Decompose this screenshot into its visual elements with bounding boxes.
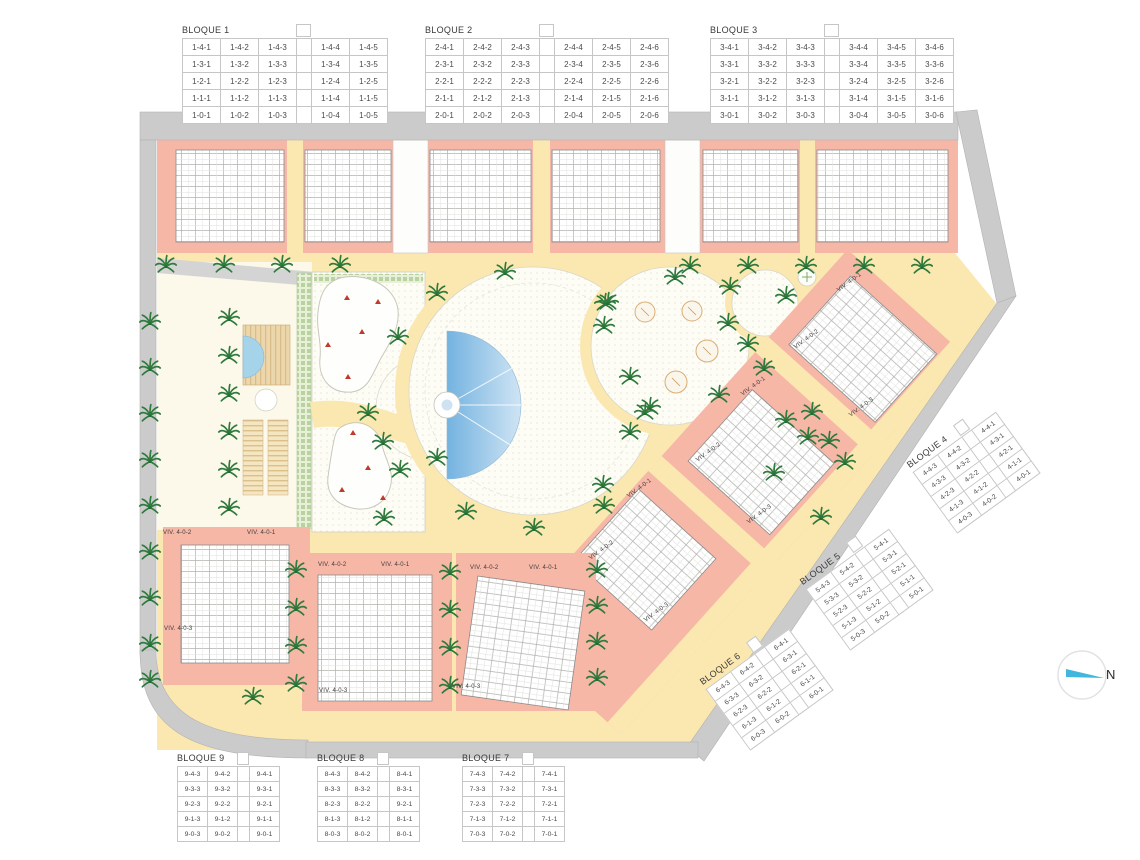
- unit-cell: 9-4-2: [208, 767, 238, 782]
- unit-cell: 2-0-1: [426, 107, 464, 124]
- unit-cell: 3-4-1: [711, 39, 749, 56]
- gap-cell: [297, 107, 312, 124]
- north-compass: [1058, 651, 1106, 699]
- unit-cell: 9-3-1: [250, 782, 280, 797]
- unit-cell: 3-3-6: [916, 56, 954, 73]
- unit-cell: 2-3-4: [555, 56, 593, 73]
- block-table-title: BLOQUE 7: [462, 752, 565, 766]
- block-table-title: BLOQUE 9: [177, 752, 280, 766]
- unit-cell: 8-1-3: [318, 812, 348, 827]
- gap-cell: [540, 73, 555, 90]
- unit-cell: 1-3-2: [221, 56, 259, 73]
- block-table-bloque-8: BLOQUE 88-4-38-4-28-4-18-3-38-3-28-3-18-…: [317, 752, 420, 842]
- unit-cell: 3-4-4: [840, 39, 878, 56]
- unit-cell: 3-4-6: [916, 39, 954, 56]
- unit-cell: 3-1-4: [840, 90, 878, 107]
- unit-cell: 3-4-5: [878, 39, 916, 56]
- unit-cell: 9-2-2: [208, 797, 238, 812]
- compass-north-label: N: [1106, 667, 1115, 682]
- unit-cell: 3-4-3: [787, 39, 825, 56]
- unit-cell: 9-2-1: [250, 797, 280, 812]
- unit-cell: 1-4-3: [259, 39, 297, 56]
- unit-label: VIV. 4-0-3: [319, 688, 347, 694]
- unit-cell: 3-1-1: [711, 90, 749, 107]
- unit-label: VIV. 4-0-1: [247, 530, 275, 536]
- unit-cell: 1-4-2: [221, 39, 259, 56]
- unit-cell: 9-0-2: [208, 827, 238, 842]
- unit-cell: 1-2-3: [259, 73, 297, 90]
- unit-cell: 2-3-3: [502, 56, 540, 73]
- pergola: [243, 420, 263, 495]
- table-corner-box: [824, 24, 839, 37]
- unit-cell: 3-2-1: [711, 73, 749, 90]
- unit-cell: 2-2-3: [502, 73, 540, 90]
- unit-cell: 7-0-1: [535, 827, 565, 842]
- unit-cell: 7-4-3: [463, 767, 493, 782]
- hedge-strip: [297, 273, 311, 529]
- unit-cell: 9-0-1: [250, 827, 280, 842]
- unit-cell: 9-4-1: [250, 767, 280, 782]
- unit-cell: 3-2-6: [916, 73, 954, 90]
- unit-cell: 1-0-4: [312, 107, 350, 124]
- block-table-title: BLOQUE 8: [317, 752, 420, 766]
- unit-cell: 2-1-3: [502, 90, 540, 107]
- unit-cell: 8-4-3: [318, 767, 348, 782]
- unit-cell: 2-1-4: [555, 90, 593, 107]
- unit-cell: 7-0-3: [463, 827, 493, 842]
- gap-cell: [238, 812, 250, 827]
- gap-cell: [540, 56, 555, 73]
- unit-cell: 8-4-2: [348, 767, 378, 782]
- unit-cell: 2-1-2: [464, 90, 502, 107]
- unit-cell: 3-0-6: [916, 107, 954, 124]
- unit-cell: 7-0-2: [493, 827, 523, 842]
- gap-cell: [238, 797, 250, 812]
- gap-cell: [523, 797, 535, 812]
- unit-label: VIV. 4-0-2: [470, 565, 498, 571]
- unit-cell: 2-4-3: [502, 39, 540, 56]
- block-table-title: BLOQUE 1: [182, 24, 388, 38]
- unit-cell: 9-2-1: [390, 797, 420, 812]
- unit-label: VIV. 4-0-3: [452, 684, 480, 690]
- gap-cell: [523, 812, 535, 827]
- unit-cell: 2-1-5: [593, 90, 631, 107]
- unit-cell: 3-3-5: [878, 56, 916, 73]
- unit-cell: 2-3-2: [464, 56, 502, 73]
- unit-cell: 3-3-1: [711, 56, 749, 73]
- unit-cell: 7-3-3: [463, 782, 493, 797]
- unit-cell: 3-0-5: [878, 107, 916, 124]
- gap-cell: [523, 767, 535, 782]
- unit-cell: 7-1-1: [535, 812, 565, 827]
- unit-cell: 8-2-2: [348, 797, 378, 812]
- gap-cell: [297, 90, 312, 107]
- unit-cell: 8-1-2: [348, 812, 378, 827]
- unit-cell: 7-2-1: [535, 797, 565, 812]
- unit-cell: 8-0-3: [318, 827, 348, 842]
- unit-cell: 3-2-3: [787, 73, 825, 90]
- gap-cell: [825, 73, 840, 90]
- apartment-building-floorplan: [318, 575, 432, 701]
- unit-cell: 2-1-6: [631, 90, 669, 107]
- gap-cell: [378, 767, 390, 782]
- unit-cell: 7-1-2: [493, 812, 523, 827]
- unit-cell: 1-2-1: [183, 73, 221, 90]
- table-corner-box: [296, 24, 311, 37]
- unit-cell: 2-0-6: [631, 107, 669, 124]
- unit-cell: 3-3-2: [749, 56, 787, 73]
- unit-cell: 3-3-4: [840, 56, 878, 73]
- unit-cell: 9-1-3: [178, 812, 208, 827]
- block-table-bloque-9: BLOQUE 99-4-39-4-29-4-19-3-39-3-29-3-19-…: [177, 752, 280, 842]
- unit-cell: 3-0-2: [749, 107, 787, 124]
- unit-cell: 3-2-4: [840, 73, 878, 90]
- gap-cell: [238, 782, 250, 797]
- unit-cell: 1-1-3: [259, 90, 297, 107]
- table-corner-box: [522, 752, 534, 765]
- unit-cell: 3-4-2: [749, 39, 787, 56]
- unit-cell: 1-4-1: [183, 39, 221, 56]
- unit-cell: 1-1-5: [350, 90, 388, 107]
- block-table-bloque-2: BLOQUE 22-4-12-4-22-4-32-4-42-4-52-4-62-…: [425, 24, 669, 124]
- unit-cell: 3-0-1: [711, 107, 749, 124]
- table-corner-box: [237, 752, 249, 765]
- unit-cell: 9-3-3: [178, 782, 208, 797]
- gap-cell: [378, 782, 390, 797]
- unit-cell: 3-2-2: [749, 73, 787, 90]
- unit-label: VIV. 4-0-3: [164, 626, 192, 632]
- unit-cell: 1-0-5: [350, 107, 388, 124]
- unit-cell: 8-0-2: [348, 827, 378, 842]
- unit-cell: 8-4-1: [390, 767, 420, 782]
- unit-cell: 1-4-4: [312, 39, 350, 56]
- unit-cell: 2-0-4: [555, 107, 593, 124]
- gap-cell: [378, 812, 390, 827]
- unit-cell: 9-0-3: [178, 827, 208, 842]
- unit-cell: 3-1-3: [787, 90, 825, 107]
- gap-cell: [825, 56, 840, 73]
- unit-cell: 7-2-3: [463, 797, 493, 812]
- gap-cell: [378, 797, 390, 812]
- unit-cell: 1-0-2: [221, 107, 259, 124]
- unit-cell: 1-4-5: [350, 39, 388, 56]
- unit-cell: 2-2-1: [426, 73, 464, 90]
- unit-cell: 1-3-5: [350, 56, 388, 73]
- unit-label: VIV. 4-0-2: [163, 530, 191, 536]
- gap-cell: [523, 827, 535, 842]
- left-plaza: [157, 262, 312, 530]
- unit-cell: 2-2-2: [464, 73, 502, 90]
- unit-cell: 2-1-1: [426, 90, 464, 107]
- gap-cell: [540, 107, 555, 124]
- unit-cell: 1-3-1: [183, 56, 221, 73]
- unit-cell: 7-1-3: [463, 812, 493, 827]
- unit-cell: 3-1-2: [749, 90, 787, 107]
- gap-cell: [378, 827, 390, 842]
- gap-cell: [238, 827, 250, 842]
- unit-cell: 9-1-2: [208, 812, 238, 827]
- unit-cell: 7-2-2: [493, 797, 523, 812]
- unit-cell: 1-1-2: [221, 90, 259, 107]
- block-table-bloque-3: BLOQUE 33-4-13-4-23-4-33-4-43-4-53-4-63-…: [710, 24, 954, 124]
- unit-cell: 9-2-3: [178, 797, 208, 812]
- plaza-circle-feature: [255, 389, 277, 411]
- unit-cell: 3-2-5: [878, 73, 916, 90]
- unit-cell: 2-3-6: [631, 56, 669, 73]
- unit-cell: 1-1-1: [183, 90, 221, 107]
- unit-cell: 8-2-3: [318, 797, 348, 812]
- unit-cell: 8-3-2: [348, 782, 378, 797]
- unit-cell: 1-2-4: [312, 73, 350, 90]
- gap-cell: [825, 39, 840, 56]
- unit-cell: 7-4-1: [535, 767, 565, 782]
- unit-cell: 2-2-4: [555, 73, 593, 90]
- unit-cell: 7-3-1: [535, 782, 565, 797]
- unit-label: VIV. 4-0-1: [529, 565, 557, 571]
- unit-cell: 1-3-3: [259, 56, 297, 73]
- unit-cell: 3-3-3: [787, 56, 825, 73]
- gap-cell: [540, 39, 555, 56]
- pergola: [268, 420, 288, 495]
- unit-cell: 9-4-3: [178, 767, 208, 782]
- unit-cell: 3-0-4: [840, 107, 878, 124]
- unit-cell: 2-4-6: [631, 39, 669, 56]
- unit-cell: 2-3-5: [593, 56, 631, 73]
- unit-cell: 9-3-2: [208, 782, 238, 797]
- unit-cell: 2-3-1: [426, 56, 464, 73]
- unit-cell: 2-4-1: [426, 39, 464, 56]
- unit-cell: 2-2-5: [593, 73, 631, 90]
- unit-cell: 3-0-3: [787, 107, 825, 124]
- gap-cell: [297, 56, 312, 73]
- unit-cell: 7-3-2: [493, 782, 523, 797]
- table-corner-box: [539, 24, 554, 37]
- unit-label: VIV. 4-0-2: [318, 562, 346, 568]
- gap-cell: [825, 90, 840, 107]
- block-table-bloque-1: BLOQUE 11-4-11-4-21-4-31-4-41-4-51-3-11-…: [182, 24, 388, 124]
- unit-cell: 8-0-1: [390, 827, 420, 842]
- gap-cell: [297, 39, 312, 56]
- unit-cell: 1-0-3: [259, 107, 297, 124]
- table-corner-box: [377, 752, 389, 765]
- unit-cell: 1-2-5: [350, 73, 388, 90]
- block-table-bloque-7: BLOQUE 77-4-37-4-27-4-17-3-37-3-27-3-17-…: [462, 752, 565, 842]
- unit-cell: 2-0-5: [593, 107, 631, 124]
- gap-cell: [825, 107, 840, 124]
- unit-cell: 3-1-5: [878, 90, 916, 107]
- gap-cell: [238, 767, 250, 782]
- gap-cell: [523, 782, 535, 797]
- unit-cell: 1-1-4: [312, 90, 350, 107]
- unit-cell: 2-2-6: [631, 73, 669, 90]
- unit-cell: 1-0-1: [183, 107, 221, 124]
- unit-cell: 7-4-2: [493, 767, 523, 782]
- unit-cell: 2-4-5: [593, 39, 631, 56]
- unit-cell: 2-4-2: [464, 39, 502, 56]
- gap-cell: [540, 90, 555, 107]
- unit-cell: 1-2-2: [221, 73, 259, 90]
- unit-cell: 2-4-4: [555, 39, 593, 56]
- unit-label: VIV. 4-0-1: [381, 562, 409, 568]
- unit-cell: 9-1-1: [250, 812, 280, 827]
- unit-cell: 3-1-6: [916, 90, 954, 107]
- unit-cell: 8-1-1: [390, 812, 420, 827]
- unit-cell: 2-0-2: [464, 107, 502, 124]
- unit-cell: 1-3-4: [312, 56, 350, 73]
- unit-cell: 2-0-3: [502, 107, 540, 124]
- apartment-building-floorplan: [181, 545, 289, 663]
- gap-cell: [297, 73, 312, 90]
- unit-cell: 8-3-3: [318, 782, 348, 797]
- unit-cell: 8-3-1: [390, 782, 420, 797]
